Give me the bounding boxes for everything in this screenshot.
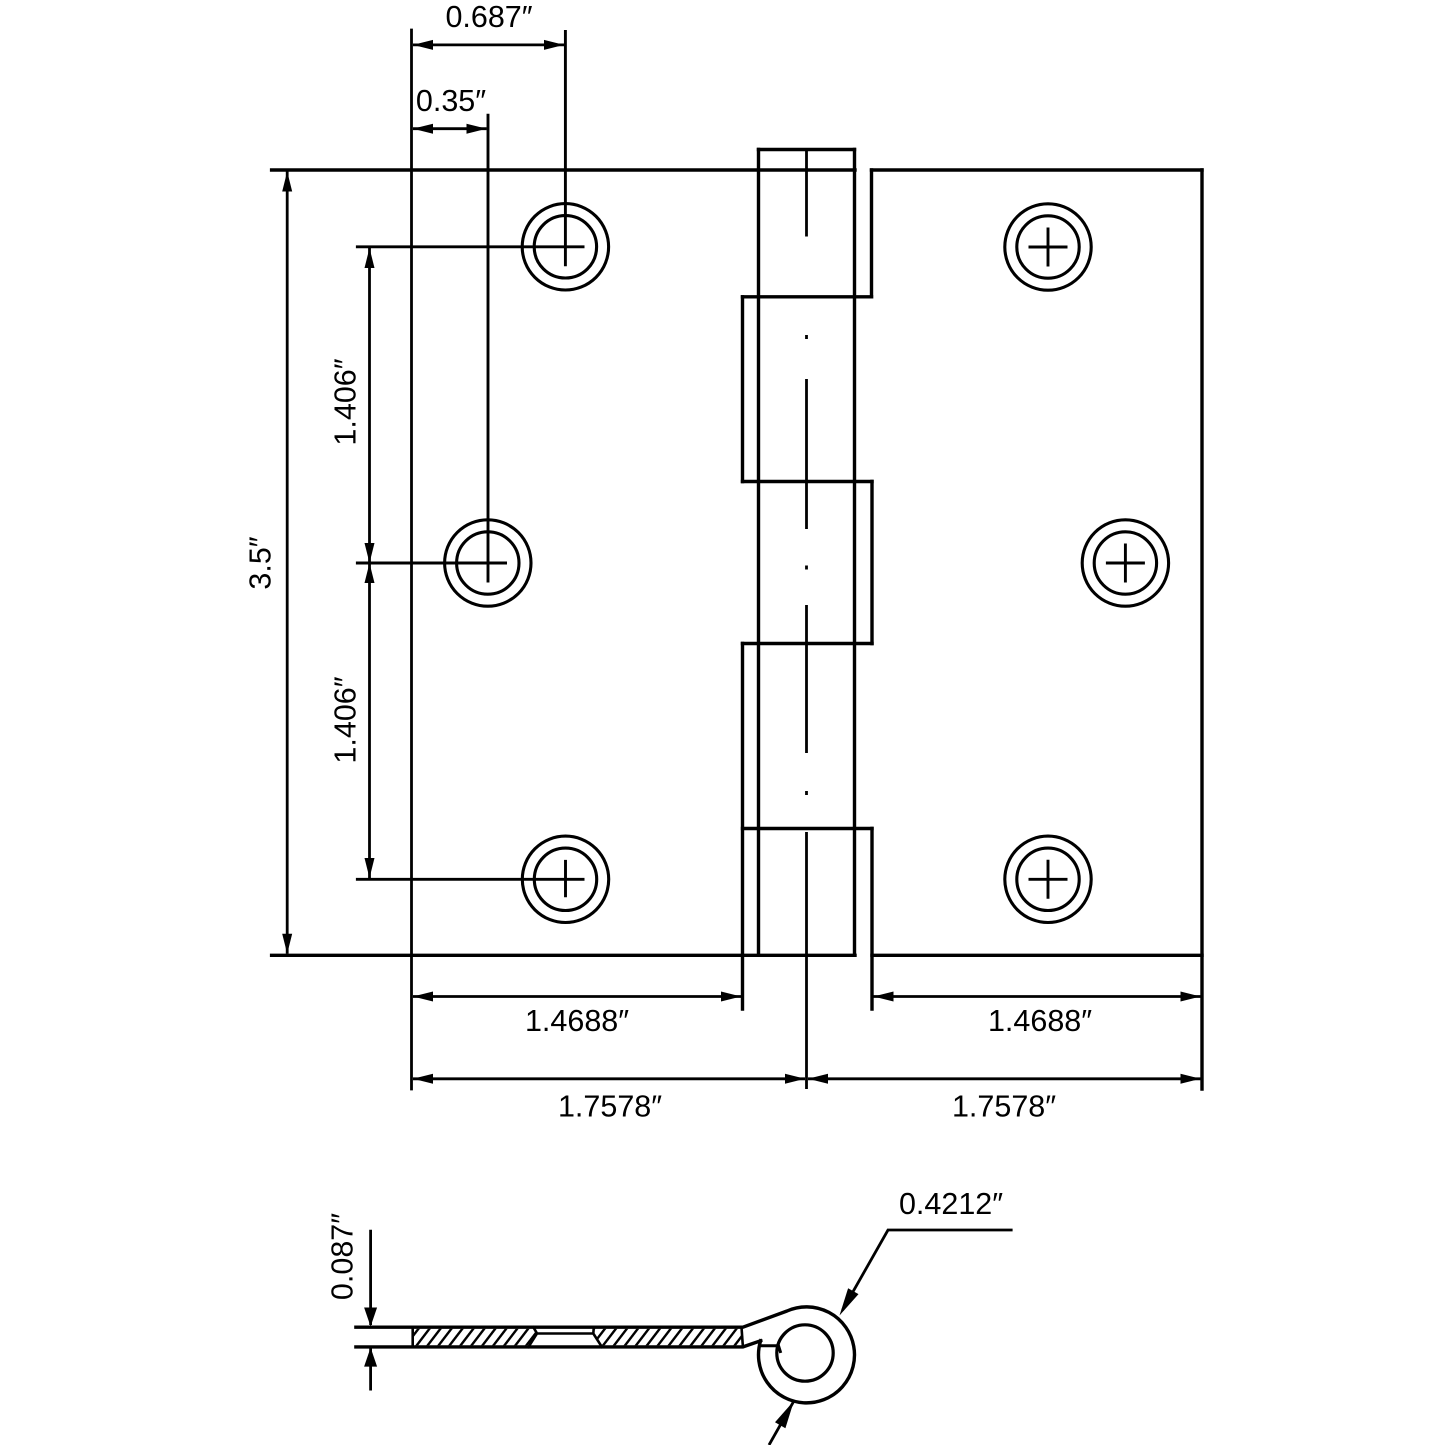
svg-text:1.406″: 1.406″ — [329, 358, 363, 445]
svg-text:1.4688″: 1.4688″ — [988, 1004, 1092, 1038]
svg-text:1.7578″: 1.7578″ — [952, 1090, 1056, 1124]
svg-text:1.406″: 1.406″ — [329, 676, 363, 763]
svg-text:0.4212″: 0.4212″ — [899, 1187, 1003, 1221]
svg-text:3.5″: 3.5″ — [244, 536, 278, 589]
svg-text:0.35″: 0.35″ — [416, 84, 486, 118]
svg-text:1.7578″: 1.7578″ — [558, 1090, 662, 1124]
svg-text:0.087″: 0.087″ — [326, 1213, 360, 1300]
svg-text:0.687″: 0.687″ — [445, 0, 532, 34]
svg-text:1.4688″: 1.4688″ — [525, 1004, 629, 1038]
